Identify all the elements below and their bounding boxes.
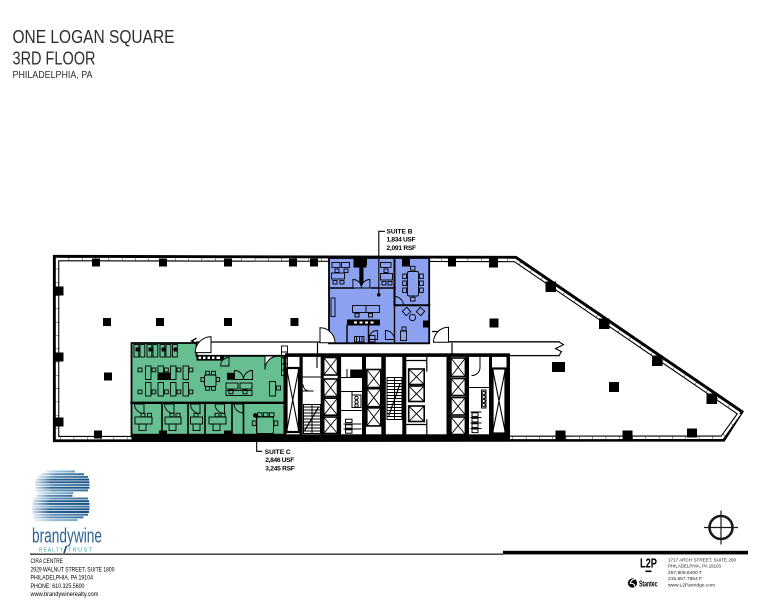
- svg-text:L2P: L2P: [640, 557, 657, 571]
- svg-text:1717 ARCH STREET, SUITE 200: 1717 ARCH STREET, SUITE 200: [668, 558, 737, 563]
- svg-text:2,846 USF: 2,846 USF: [265, 457, 294, 464]
- svg-text:R E A L T Y: R E A L T Y: [39, 547, 64, 553]
- svg-text:PHILADELPHIA, PA: PHILADELPHIA, PA: [13, 70, 93, 81]
- svg-text:CIRA CENTRE: CIRA CENTRE: [31, 558, 64, 565]
- svg-text:1,834 USF: 1,834 USF: [387, 237, 416, 244]
- svg-text:Stantec: Stantec: [639, 580, 658, 589]
- svg-text:brandywine: brandywine: [32, 526, 102, 548]
- svg-text:SUITE C: SUITE C: [265, 449, 291, 456]
- svg-text:267.809.8400 T: 267.809.8400 T: [668, 570, 702, 575]
- svg-text:PHONE: 610.325.5600: PHONE: 610.325.5600: [31, 583, 85, 590]
- svg-text:2929 WALNUT STREET, SUITE 1800: 2929 WALNUT STREET, SUITE 1800: [31, 566, 115, 573]
- svg-text:215.557.7964 F: 215.557.7964 F: [668, 576, 702, 581]
- svg-text:ONE LOGAN SQUARE: ONE LOGAN SQUARE: [13, 26, 175, 47]
- svg-text:PHILADELPHIA, PA 19103: PHILADELPHIA, PA 19103: [668, 564, 721, 569]
- svg-text:3RD FLOOR: 3RD FLOOR: [13, 48, 96, 69]
- svg-text:SUITE B: SUITE B: [387, 229, 413, 236]
- svg-text:3,245 RSF: 3,245 RSF: [265, 465, 295, 472]
- svg-text:T R U S T: T R U S T: [68, 547, 92, 553]
- svg-text:2,091 RSF: 2,091 RSF: [387, 245, 417, 252]
- svg-text:www.L2Partridge.com: www.L2Partridge.com: [668, 582, 715, 587]
- svg-text:PHILADELPHIA, PA 19104: PHILADELPHIA, PA 19104: [31, 575, 94, 582]
- svg-text:www.brandywinerealty.com: www.brandywinerealty.com: [30, 591, 99, 598]
